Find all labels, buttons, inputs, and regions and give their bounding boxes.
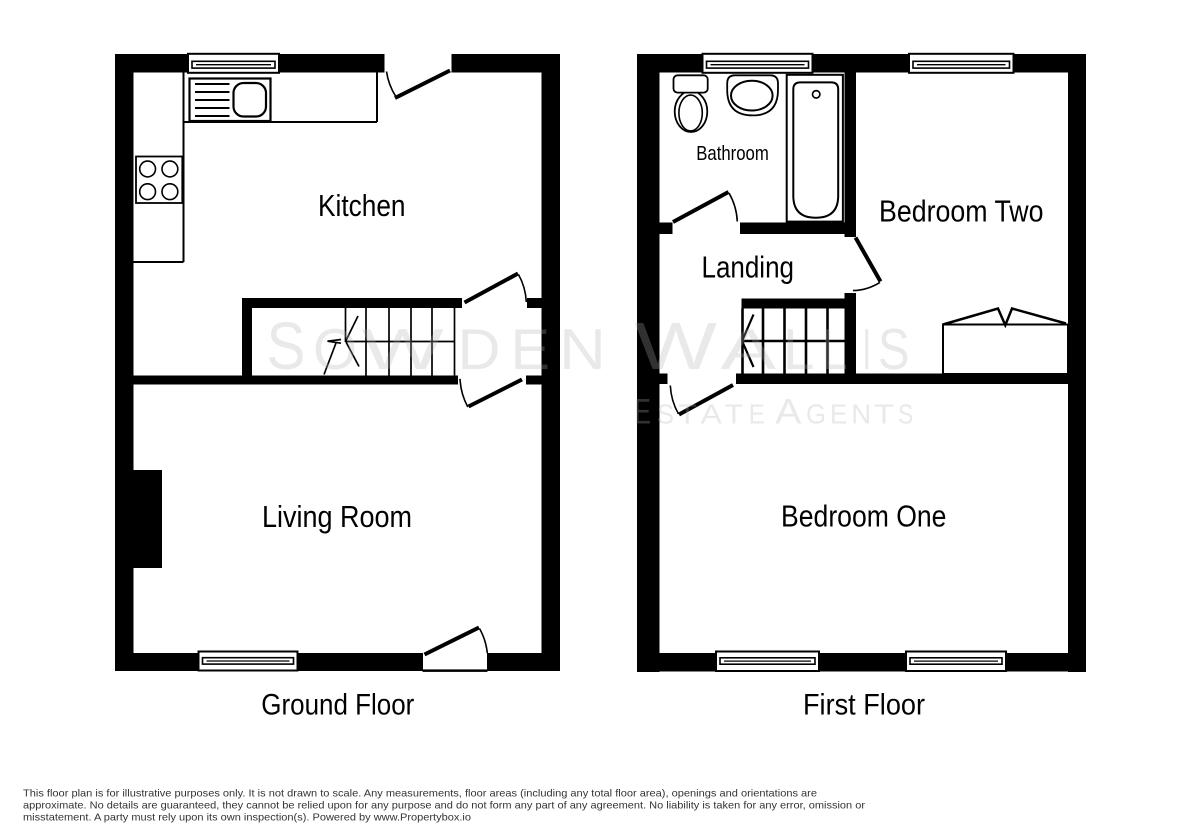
svg-text:Ground Floor: Ground Floor <box>261 689 414 722</box>
svg-text:I: I <box>863 318 872 382</box>
svg-text:A: A <box>701 399 723 430</box>
svg-text:Landing: Landing <box>702 250 795 285</box>
svg-text:T: T <box>678 399 697 430</box>
svg-text:E: E <box>749 399 765 430</box>
svg-text:Bedroom One: Bedroom One <box>781 499 946 534</box>
svg-text:N: N <box>851 399 871 430</box>
svg-text:This floor plan is for illustr: This floor plan is for illustrative purp… <box>23 789 817 800</box>
svg-text:Bathroom: Bathroom <box>696 143 769 165</box>
svg-text:L: L <box>822 318 848 382</box>
svg-text:T: T <box>874 399 894 430</box>
svg-text:misstatement. A party must rel: misstatement. A party must rely upon its… <box>23 813 471 824</box>
svg-text:A: A <box>721 318 777 382</box>
svg-text:W: W <box>635 310 718 384</box>
svg-text:Bedroom Two: Bedroom Two <box>879 194 1044 229</box>
svg-text:Living Room: Living Room <box>262 499 412 534</box>
svg-text:First Floor: First Floor <box>803 689 925 722</box>
svg-text:E: E <box>634 393 651 432</box>
svg-text:Kitchen: Kitchen <box>318 188 406 223</box>
svg-text:W: W <box>362 318 445 382</box>
svg-text:E: E <box>511 318 551 382</box>
svg-text:S: S <box>267 310 306 384</box>
svg-text:approximate. No details are gu: approximate. No details are guaranteed, … <box>23 801 866 812</box>
svg-text:S: S <box>898 399 913 430</box>
svg-text:G: G <box>806 399 826 430</box>
svg-text:D: D <box>458 318 501 382</box>
svg-text:A: A <box>775 393 802 432</box>
svg-text:S: S <box>657 399 674 430</box>
svg-text:E: E <box>830 399 847 430</box>
svg-text:O: O <box>313 318 357 382</box>
svg-text:S: S <box>878 318 910 382</box>
svg-text:L: L <box>783 318 815 382</box>
svg-text:N: N <box>559 318 606 382</box>
svg-text:T: T <box>725 399 744 430</box>
